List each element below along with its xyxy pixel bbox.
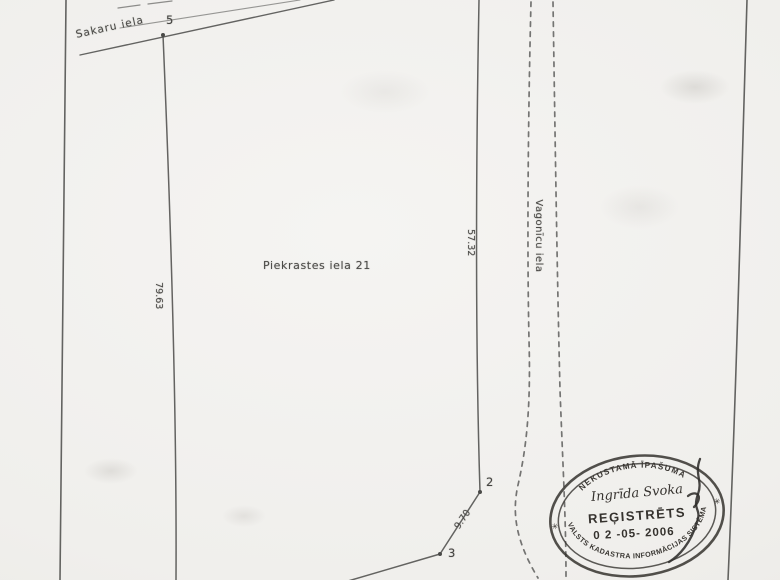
point-label-3: 3 [448,548,455,560]
parcel-boundary-west [163,35,176,580]
point-label-5: 5 [166,15,173,27]
boundary-point-5 [161,33,165,37]
road-dashed-east-edge [553,2,566,578]
dimension-east: 57.32 [465,225,475,261]
stamp-star-right: ✳ [713,497,721,507]
dimension-west: 79.63 [153,278,163,314]
boundary-point-2 [478,490,482,494]
road-dashed-west-edge [515,2,538,578]
border-line-right [728,0,747,580]
scanned-cadastral-plan: NEKUSTAMĀ ĪPAŠUMA VALSTS KADASTRA INFORM… [0,0,780,580]
road-top-edge-2 [120,0,300,28]
point-label-2: 2 [486,477,493,489]
parcel-boundary-east [477,0,481,492]
border-line-left [60,0,66,580]
parcel-boundary-south [348,554,440,580]
street-label-right: Vagonīcu iela [533,197,543,275]
boundary-point-3 [438,552,442,556]
parcel-address-label: Piekrastes iela 21 [263,260,371,271]
road-top-dashes [118,1,172,8]
